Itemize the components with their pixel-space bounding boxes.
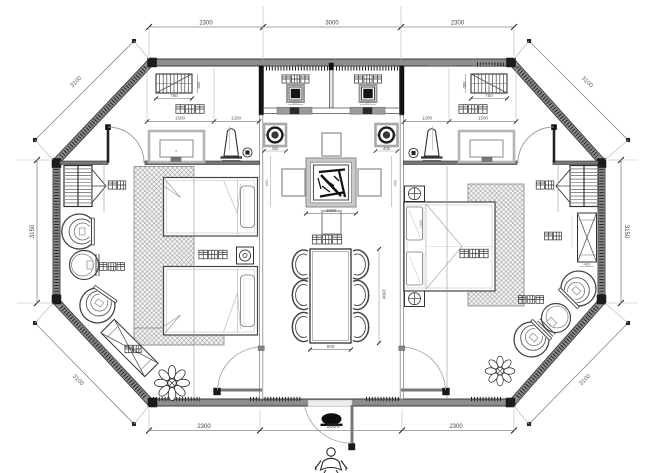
svg-text:3000: 3000 bbox=[326, 424, 340, 430]
svg-text:600: 600 bbox=[462, 82, 467, 90]
svg-text:2300: 2300 bbox=[197, 424, 211, 430]
svg-text:1500: 1500 bbox=[175, 116, 186, 121]
svg-text:600: 600 bbox=[264, 179, 269, 186]
svg-text:1500: 1500 bbox=[326, 208, 337, 213]
svg-text:600: 600 bbox=[393, 180, 398, 187]
svg-text:2300: 2300 bbox=[451, 21, 465, 27]
svg-text:2000: 2000 bbox=[382, 289, 387, 300]
svg-text:2300: 2300 bbox=[449, 424, 463, 430]
svg-text:600: 600 bbox=[327, 344, 335, 349]
svg-text:1200: 1200 bbox=[422, 116, 433, 121]
svg-text:1500: 1500 bbox=[478, 116, 489, 121]
svg-text:750: 750 bbox=[170, 93, 178, 98]
svg-text:600: 600 bbox=[196, 81, 201, 89]
svg-text:300: 300 bbox=[365, 101, 371, 105]
svg-text:400: 400 bbox=[584, 262, 591, 267]
svg-text:3150: 3150 bbox=[30, 224, 36, 238]
svg-text:3150: 3150 bbox=[623, 225, 629, 239]
svg-text:750: 750 bbox=[485, 93, 493, 98]
svg-text:400: 400 bbox=[272, 146, 280, 151]
svg-text:1200: 1200 bbox=[231, 116, 242, 121]
svg-text:1800: 1800 bbox=[419, 220, 423, 228]
svg-text:400: 400 bbox=[383, 146, 391, 151]
svg-text:300: 300 bbox=[292, 101, 298, 105]
svg-text:2300: 2300 bbox=[199, 21, 213, 27]
svg-text:3000: 3000 bbox=[325, 21, 339, 27]
